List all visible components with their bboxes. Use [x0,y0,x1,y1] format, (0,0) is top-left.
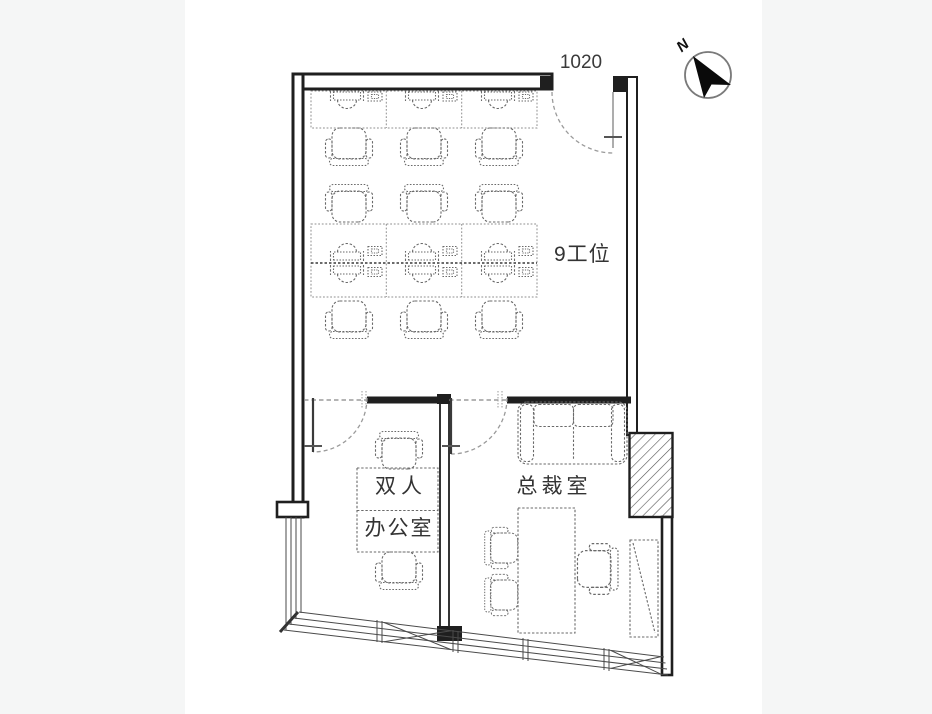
sofa [518,402,627,464]
executive-chair [577,544,618,595]
wall-top [293,74,552,89]
phone-icon [443,92,457,101]
office-chair [476,301,523,339]
door-entry-top [552,92,622,153]
door-double-office [304,398,367,452]
phone-icon [443,247,457,256]
phone-icon [519,247,533,256]
office-chair [401,128,448,166]
wall-right [627,77,637,435]
exterior-walls [277,74,673,675]
label-room-open-office: 9工位 [554,243,611,266]
door-ceo-office [442,398,507,454]
office-chair [401,301,448,339]
monitor-icon [482,265,515,283]
workstation-bank-middle [311,185,537,339]
guest-chair [485,574,518,615]
phone-icon [443,268,457,277]
phone-icon [368,247,382,256]
phone-icon [519,268,533,277]
label-door-dimension: 1020 [552,53,610,74]
wall-top-end-cap [540,76,552,90]
office-chair [401,185,448,223]
structural-column [630,433,673,517]
label-room-double-office-line1: 双人 [357,475,445,498]
window-curtain-wall [280,517,668,675]
wardrobe [630,540,658,637]
window-corner-cap [280,612,298,632]
wall-right-lower [662,517,672,675]
office-chair [376,552,423,590]
wall-left [293,74,303,517]
interior-partitions [304,391,631,641]
double-office-furniture [357,432,438,590]
partition-center-top-cap [437,394,451,404]
office-chair [326,301,373,339]
office-chair [326,185,373,223]
wall-left-step [277,502,308,517]
monitor-icon [331,91,364,109]
office-chair [376,432,423,470]
partition-center [440,396,449,632]
office-chair [326,128,373,166]
window-x-brace [611,657,661,669]
north-compass [685,52,731,98]
floor-plan-drawing [0,0,932,714]
label-room-double-office-line2: 办公室 [355,517,443,540]
monitor-icon [482,244,515,262]
monitor-icon [406,244,439,262]
ceo-desk [518,508,575,633]
phone-icon [368,92,382,101]
monitor-icon [331,265,364,283]
phone-icon [519,92,533,101]
guest-chair [485,527,518,568]
label-room-ceo-office: 总裁室 [511,475,597,498]
office-chair [476,128,523,166]
floor-plan-canvas: 1020 9工位 双人 办公室 总裁室 N [0,0,932,714]
monitor-icon [331,244,364,262]
monitor-icon [482,91,515,109]
monitor-icon [406,91,439,109]
partition-horizontal-left [367,397,441,404]
office-chair [476,185,523,223]
workstation-bank-top [311,91,537,166]
phone-icon [368,268,382,277]
north-arrow-icon [693,56,731,98]
monitor-icon [406,265,439,283]
